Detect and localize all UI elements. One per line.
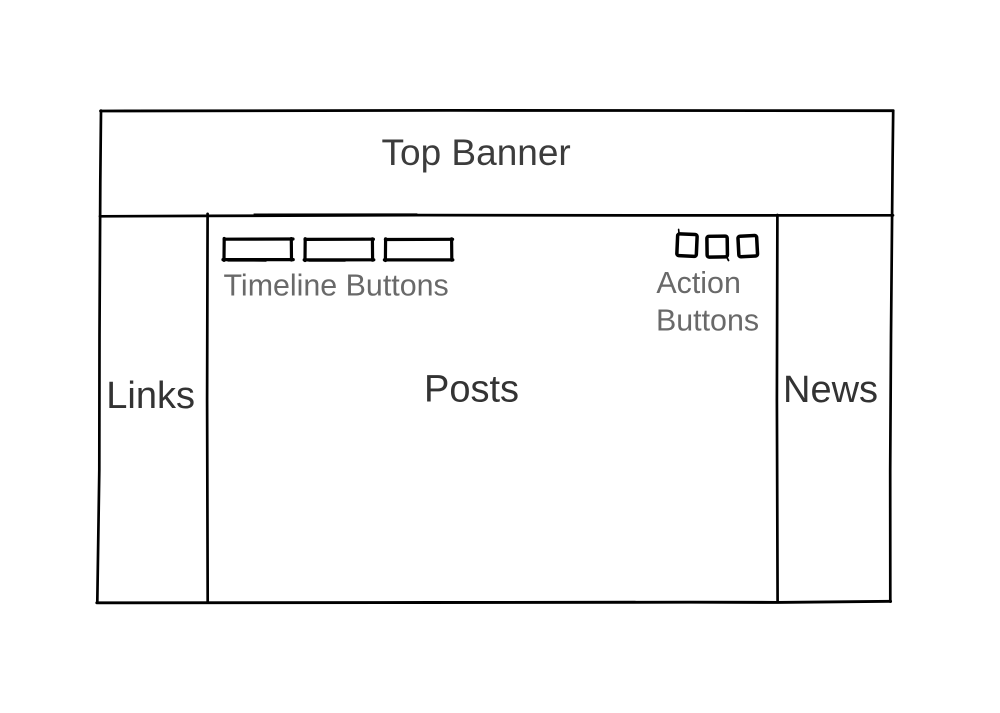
svg-text:News: News <box>783 369 878 411</box>
svg-text:Links: Links <box>106 375 195 417</box>
svg-text:Posts: Posts <box>424 369 519 411</box>
svg-text:Buttons: Buttons <box>656 304 759 338</box>
svg-text:Timeline Buttons: Timeline Buttons <box>224 268 449 302</box>
svg-text:Action: Action <box>656 266 740 300</box>
svg-text:Top Banner: Top Banner <box>382 132 571 173</box>
